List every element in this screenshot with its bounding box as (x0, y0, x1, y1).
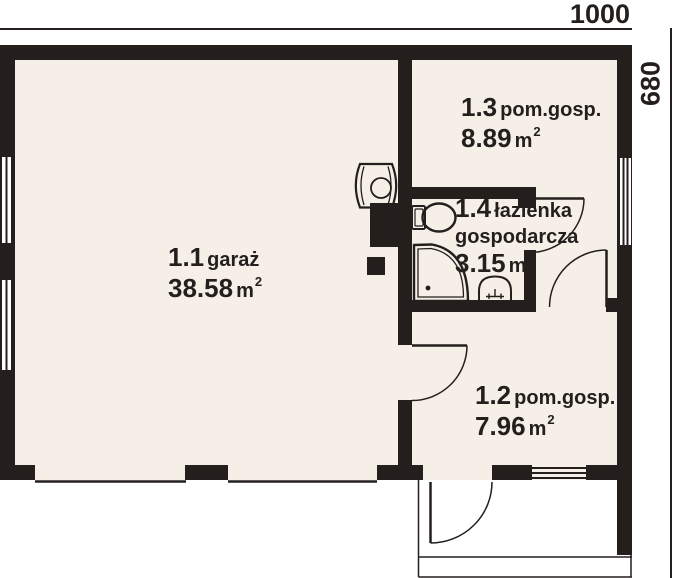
chimney-block (370, 203, 398, 247)
room-1-1-title: 1.1garaż (168, 244, 262, 275)
room-1-1-area: 38.58m2 (168, 275, 262, 306)
room-1-2-title: 1.2pom.gosp. (475, 382, 615, 413)
dim-width-label: 1000 (570, 1, 630, 28)
wall-bottom-pier-4 (492, 465, 532, 480)
dim-height-line (670, 28, 672, 578)
room-label-1-1: 1.1garaż 38.58m2 (168, 244, 262, 306)
wall-bath-south (398, 300, 533, 312)
room-1-3-title: 1.3pom.gosp. (461, 94, 601, 125)
entrance-steps (419, 480, 633, 577)
wall-hall-south-stub (606, 298, 632, 312)
room-label-1-3: 1.3pom.gosp. 8.89m2 (461, 94, 601, 156)
floor-plan: 1000 680 (0, 0, 676, 578)
room-label-1-4: 1.4łazienka gospodarcza 3.15m2 (455, 196, 578, 280)
room-1-4-title: 1.4łazienka (455, 196, 578, 225)
wall-garage-east-lower (398, 400, 412, 480)
dim-width-line (0, 28, 632, 30)
window-left-upper (0, 157, 13, 243)
room-1-2-area: 7.96m2 (475, 413, 615, 444)
room-1-4-area: 3.15m2 (455, 251, 578, 280)
wall-exterior-top (0, 45, 632, 60)
wall-bottom-pier-2 (185, 465, 228, 480)
wall-exterior-left (0, 45, 15, 480)
window-left-lower (0, 280, 13, 370)
dim-height-label: 680 (638, 56, 665, 112)
room-label-1-2: 1.2pom.gosp. 7.96m2 (475, 382, 615, 444)
wall-bottom-pier-1 (0, 465, 35, 480)
pillar-block (367, 257, 385, 275)
window-bottom-1-2 (532, 466, 586, 479)
room-1-3-area: 8.89m2 (461, 125, 601, 156)
window-right (618, 158, 631, 245)
door-exterior-1-2 (431, 482, 493, 543)
wall-bottom-pier-5 (586, 465, 632, 480)
